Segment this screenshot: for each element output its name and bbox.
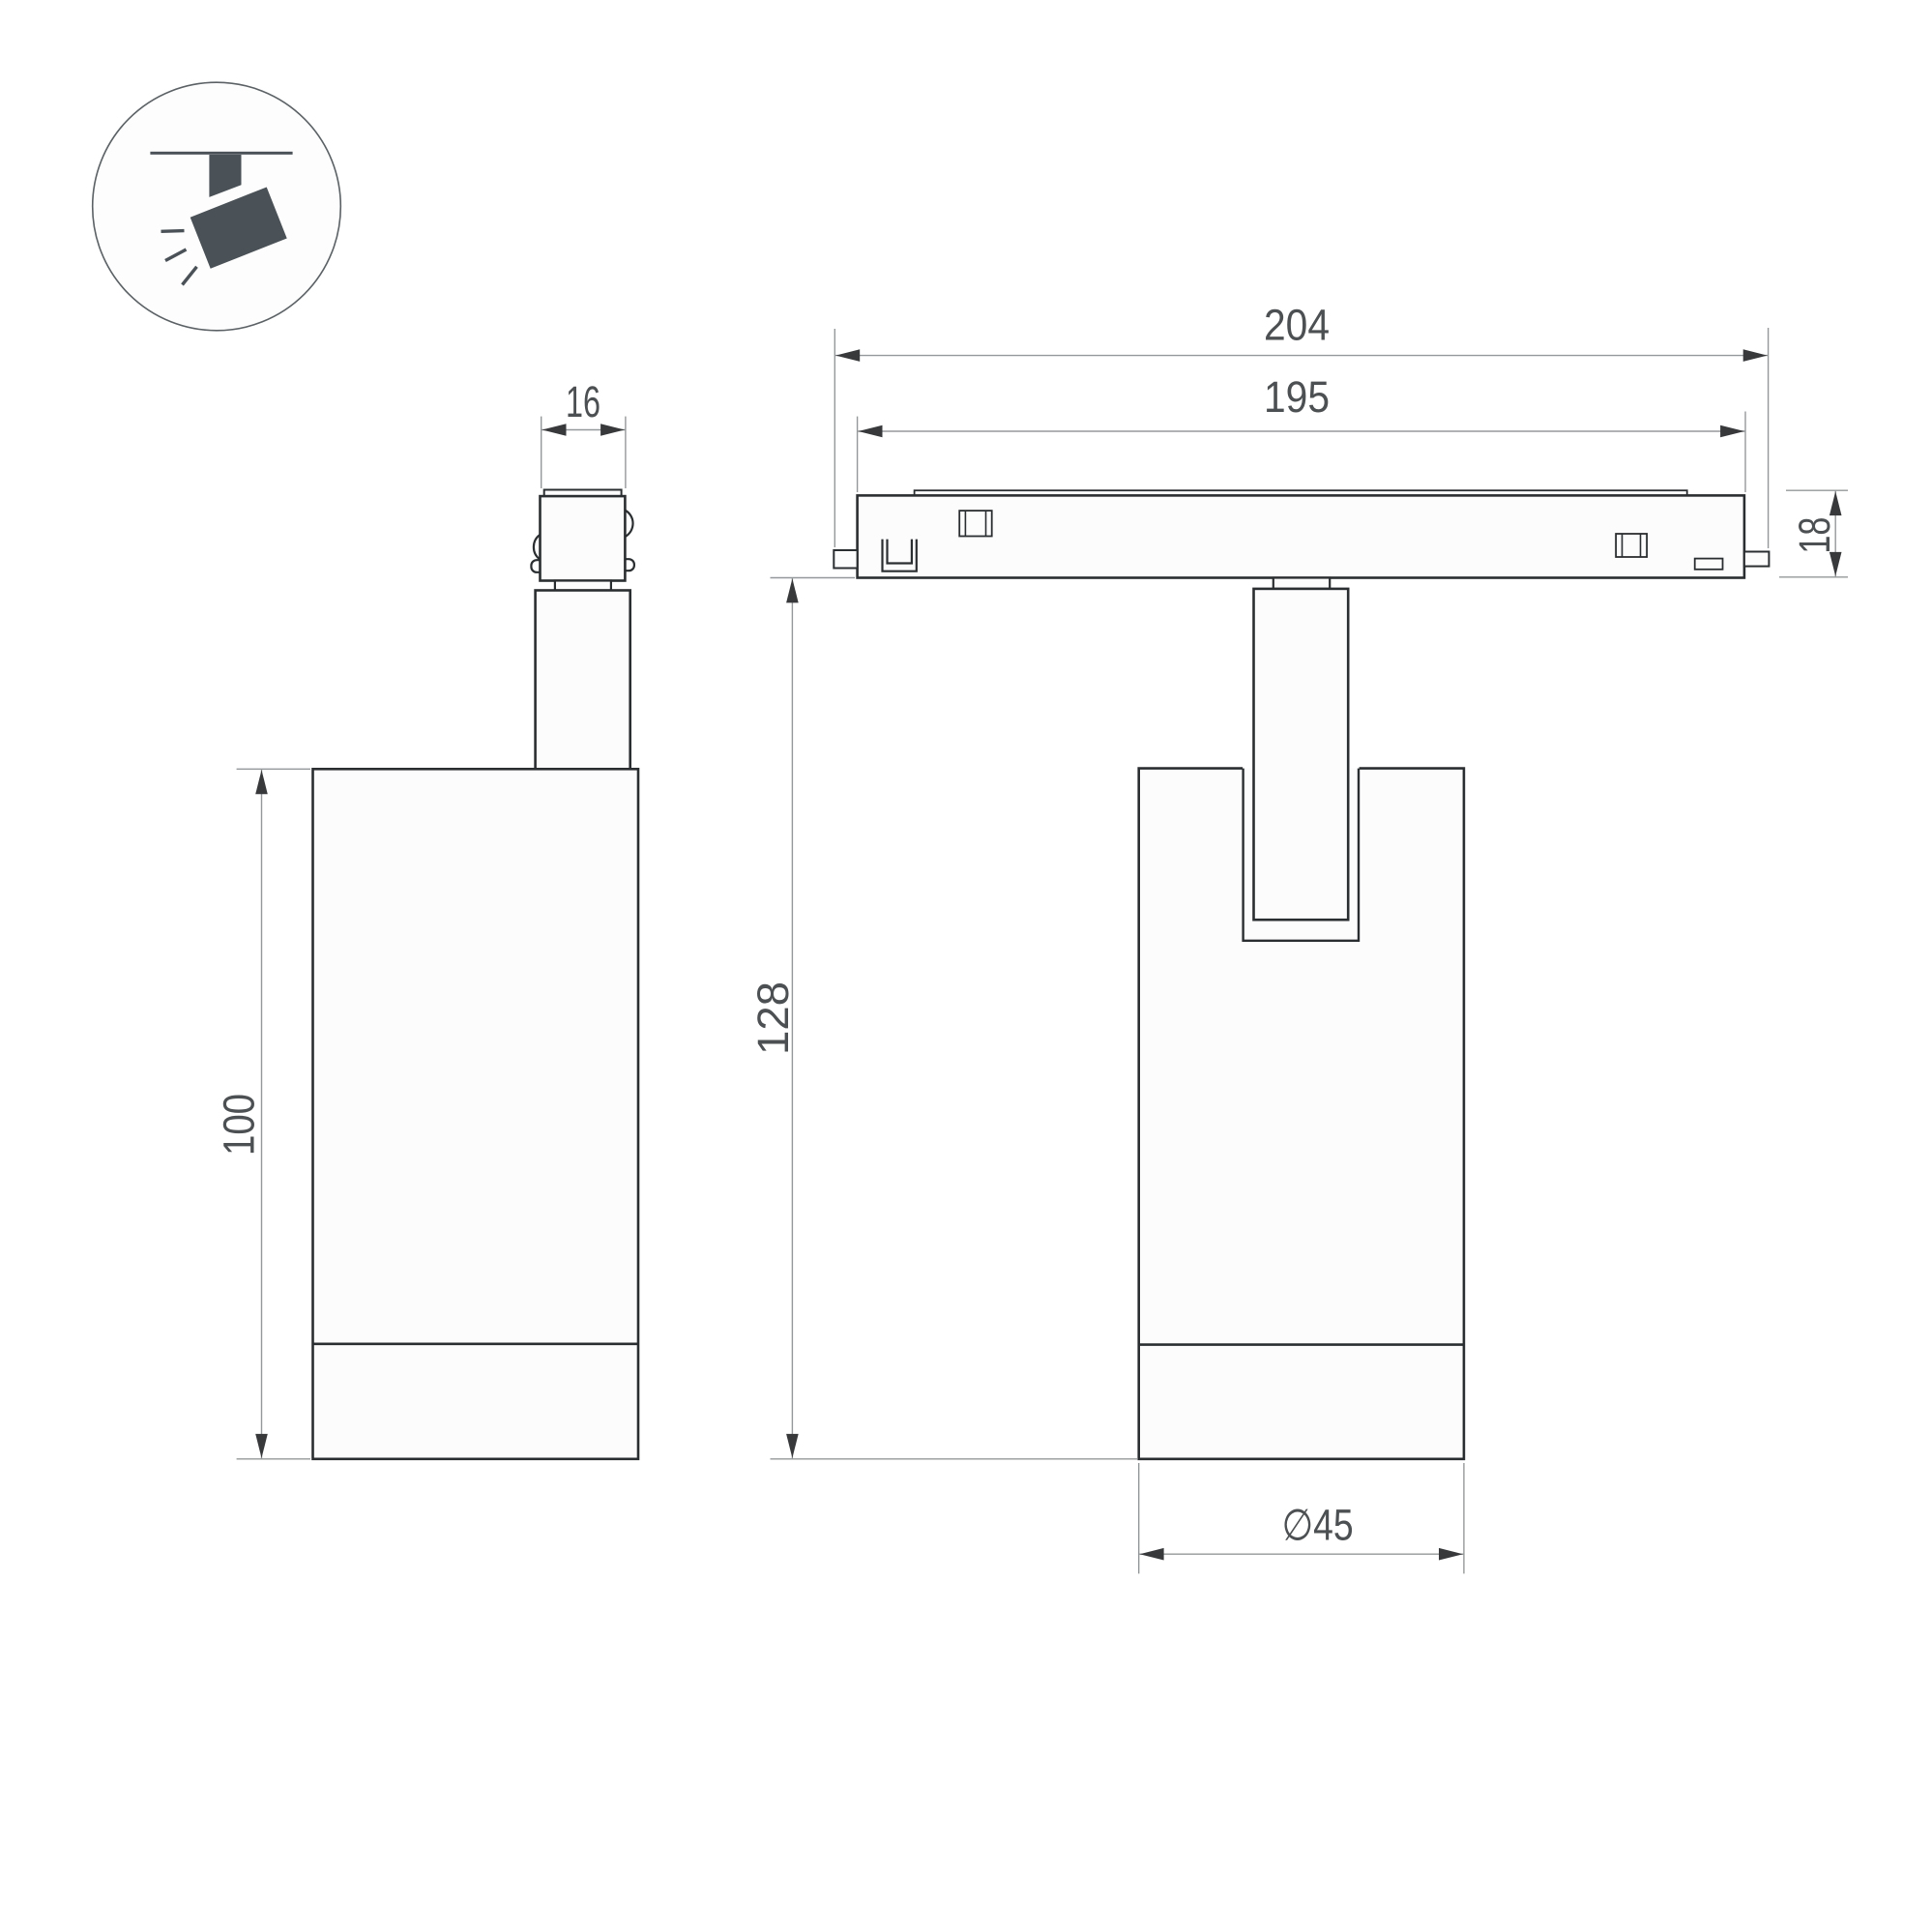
svg-text:18: 18 [1790,517,1839,554]
svg-text:195: 195 [1264,372,1330,422]
svg-text:204: 204 [1264,301,1330,350]
svg-text:128: 128 [748,981,798,1055]
svg-text:16: 16 [566,377,600,426]
svg-text:100: 100 [215,1094,264,1156]
svg-text:∅45: ∅45 [1282,1501,1354,1550]
